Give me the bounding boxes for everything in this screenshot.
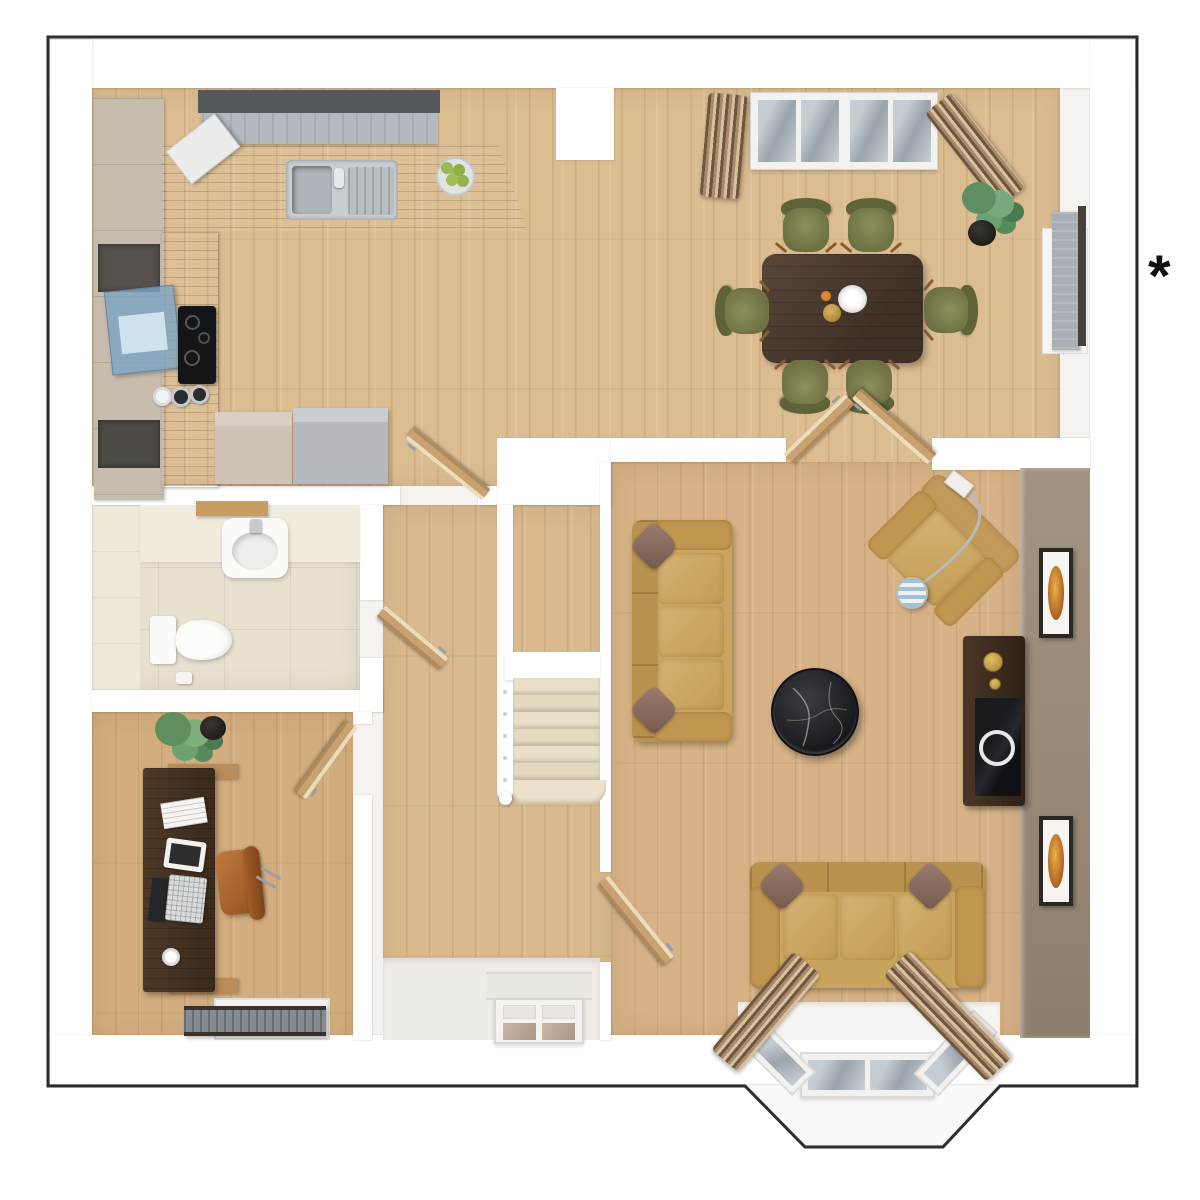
dining-chair-top-left	[780, 198, 832, 256]
wc-shelf	[196, 501, 268, 516]
wall-study-east-stub	[353, 712, 372, 724]
wc-basin-bowl	[232, 532, 278, 570]
entry-threshold	[486, 972, 592, 1000]
table-fruit	[821, 291, 831, 301]
art-canvas	[1048, 834, 1064, 888]
wall-study-east	[353, 795, 372, 1040]
stair-landing-nosing	[505, 652, 600, 680]
kitchen-unit-beige	[215, 412, 292, 484]
kitchen-window-pelmet	[198, 90, 440, 113]
tv-logo-ring	[979, 730, 1015, 766]
stair-step	[513, 763, 600, 780]
wall-hall-living-lower	[600, 962, 611, 1040]
door-pane	[893, 100, 931, 162]
door-pane	[758, 100, 796, 162]
front-door-panel	[542, 1005, 575, 1019]
wall-wc-south	[92, 690, 383, 712]
wc-toilet-cistern	[150, 616, 176, 664]
stair-step	[513, 678, 600, 695]
chair-seat	[782, 360, 828, 404]
stair-step	[513, 746, 600, 763]
wc-toilet-roll	[176, 672, 192, 684]
kitchen-appliance-insert	[98, 420, 160, 468]
asterisk-annotation: *	[1148, 248, 1171, 306]
table-flowers	[838, 285, 867, 313]
wall-right	[1090, 40, 1135, 1084]
stair-step	[513, 729, 600, 746]
dining-chair-right	[920, 284, 978, 336]
stairs	[513, 678, 600, 804]
study-radiator	[184, 1006, 326, 1036]
table-gold-vase	[823, 304, 841, 322]
desk-mug	[162, 948, 180, 966]
apples	[441, 162, 453, 174]
kitchen-faucet	[334, 168, 344, 188]
chair-seat	[725, 288, 769, 334]
hob-burner	[198, 332, 210, 344]
stair-baluster	[503, 690, 507, 694]
wall-hall-living-upper	[600, 462, 611, 872]
pot-dark	[190, 385, 209, 404]
stair-newel	[499, 792, 512, 805]
stair-step-bottom	[513, 780, 606, 804]
sofa-cushion	[658, 606, 724, 657]
wc-toilet-bowl	[176, 620, 232, 660]
console-brass-dish	[989, 678, 1001, 690]
chair-seat	[848, 208, 894, 252]
dining-plant-foliage	[962, 182, 996, 214]
wall-top	[50, 40, 1135, 88]
front-door-glass	[503, 1023, 536, 1040]
extractor-glass-core	[118, 312, 168, 355]
stair-step	[513, 712, 600, 729]
kitchen-oven	[98, 244, 160, 292]
front-door-glass	[542, 1023, 575, 1040]
pot-dark	[171, 387, 191, 407]
front-door-panel	[503, 1005, 536, 1019]
dining-chair-bottom-left	[779, 356, 831, 414]
door-pane	[801, 100, 839, 162]
pot-white	[153, 387, 172, 406]
hob-burner	[185, 315, 200, 330]
dining-chair-top-right	[845, 198, 897, 256]
console-brass-dish	[983, 652, 1003, 672]
sofa-cushion	[658, 553, 724, 604]
kitchen-unit-gray	[293, 408, 388, 484]
hob-burner	[184, 350, 200, 366]
chair-seat	[924, 287, 968, 333]
art-canvas	[1048, 566, 1064, 620]
front-door	[494, 998, 584, 1044]
coffee-table	[771, 668, 859, 756]
wall-stair-head-block	[497, 438, 611, 505]
sofa-cushion	[783, 894, 838, 960]
wall-living-north-right	[932, 438, 1090, 470]
marble-veins	[773, 670, 861, 758]
wc-basin-faucet	[250, 519, 262, 533]
wall-art-lower	[1039, 816, 1073, 906]
tv-console	[963, 636, 1025, 806]
stair-step	[513, 695, 600, 712]
wall-left	[50, 40, 92, 1084]
desk-tablet-screen	[169, 843, 201, 867]
sofa-arm	[955, 886, 985, 988]
sofa-cushion	[840, 894, 895, 960]
laptop-keyboard	[165, 874, 208, 924]
wall-wc-east-upper	[360, 505, 383, 600]
dining-side-window-bar	[1078, 206, 1086, 346]
dining-chair-left	[715, 285, 773, 337]
kitchen-window-blind	[202, 113, 438, 144]
door-pane	[850, 100, 888, 162]
study-plant-pot	[200, 716, 226, 740]
dining-plant-pot	[968, 220, 996, 246]
french-doors	[750, 92, 938, 170]
wc-wall-tile-strip	[92, 505, 140, 690]
wall-living-north-left	[611, 438, 786, 462]
dining-side-window-blind	[1052, 212, 1080, 350]
wall-art-upper	[1039, 548, 1073, 638]
kitchen-sink-bowl	[292, 166, 332, 214]
wall-kitchen-pillar	[556, 88, 614, 160]
floor-plan-canvas: *	[0, 0, 1200, 1200]
window-pane	[808, 1060, 865, 1090]
kitchen-sink-drainer	[348, 167, 394, 215]
study-plant-foliage	[155, 712, 191, 746]
wall-wc-east-lower	[360, 658, 383, 712]
lamp-shade	[896, 577, 928, 609]
chair-seat	[783, 208, 829, 252]
